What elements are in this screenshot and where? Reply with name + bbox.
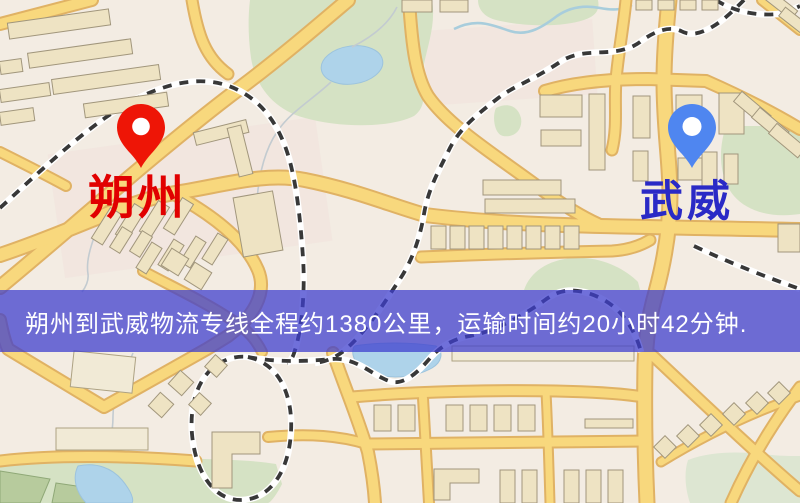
map-view: 朔州到武威物流专线全程约1380公里，运输时间约20小时42分钟. 朔州 武威	[0, 0, 800, 503]
map-canvas[interactable]	[0, 0, 800, 503]
destination-pin[interactable]	[667, 103, 717, 169]
origin-label: 朔州	[88, 176, 186, 223]
destination-pin-icon	[667, 103, 717, 169]
destination-label: 武威	[640, 181, 734, 224]
origin-pin[interactable]	[116, 103, 166, 169]
origin-pin-icon	[116, 103, 166, 169]
route-info-text: 朔州到武威物流专线全程约1380公里，运输时间约20小时42分钟.	[25, 304, 747, 339]
route-info-banner: 朔州到武威物流专线全程约1380公里，运输时间约20小时42分钟.	[0, 290, 800, 352]
